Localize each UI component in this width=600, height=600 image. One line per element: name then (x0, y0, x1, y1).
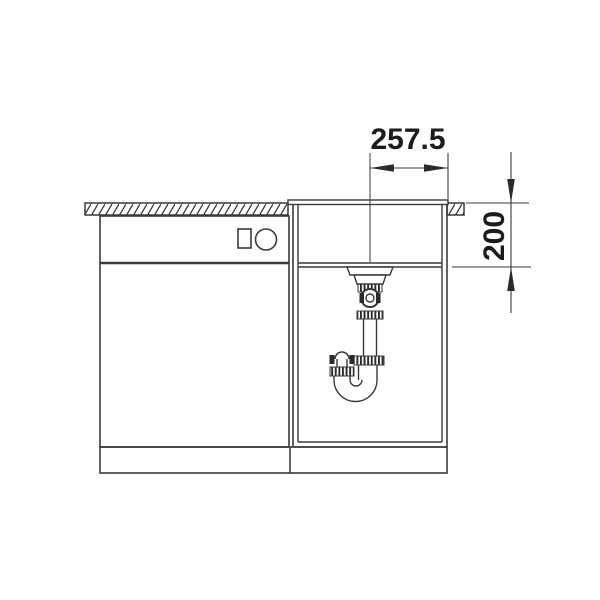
countertop-hatch-right (447, 203, 464, 215)
dim-label-vertical: 200 (478, 211, 511, 261)
plinth (100, 447, 447, 473)
sink-flange (288, 200, 448, 205)
dim-arrow-down-icon (507, 179, 515, 203)
cleanout-wing-left (330, 355, 335, 364)
dishwasher-button-icon (238, 229, 251, 248)
dim-label-horizontal: 257.5 (370, 123, 445, 156)
plinth-band (100, 447, 447, 473)
trap-u-bend-inner (350, 380, 362, 386)
dim-arrow-left-icon (370, 164, 394, 172)
trap-u-bend-outer (334, 380, 377, 402)
sink-basin (288, 200, 448, 267)
ball-joint-right-tab (376, 293, 381, 303)
coupling-nut-lower (354, 356, 384, 365)
strainer-body (354, 275, 386, 284)
dishwasher-body (100, 216, 289, 447)
siphon-assembly (330, 267, 394, 402)
sink-installation-diagram: 257.5 200 (0, 0, 600, 600)
cleanout-cap-dome (335, 352, 349, 359)
dishwasher-cabinet (100, 216, 289, 447)
cleanout-wing-right (350, 355, 355, 364)
dishwasher-knob-icon (256, 229, 277, 250)
dimension-vertical: 200 (452, 152, 531, 313)
strainer-flange (347, 267, 393, 275)
ball-joint-left-tab (360, 293, 365, 303)
dim-arrow-up-icon (507, 267, 515, 291)
countertop-hatch-left (85, 203, 288, 215)
dimension-horizontal: 257.5 (370, 123, 448, 199)
coupling-nut-mid (357, 311, 383, 319)
technical-drawing-canvas: 257.5 200 (0, 0, 600, 600)
dim-arrow-right-icon (424, 164, 448, 172)
coupling-nut-left-arm (330, 367, 354, 376)
